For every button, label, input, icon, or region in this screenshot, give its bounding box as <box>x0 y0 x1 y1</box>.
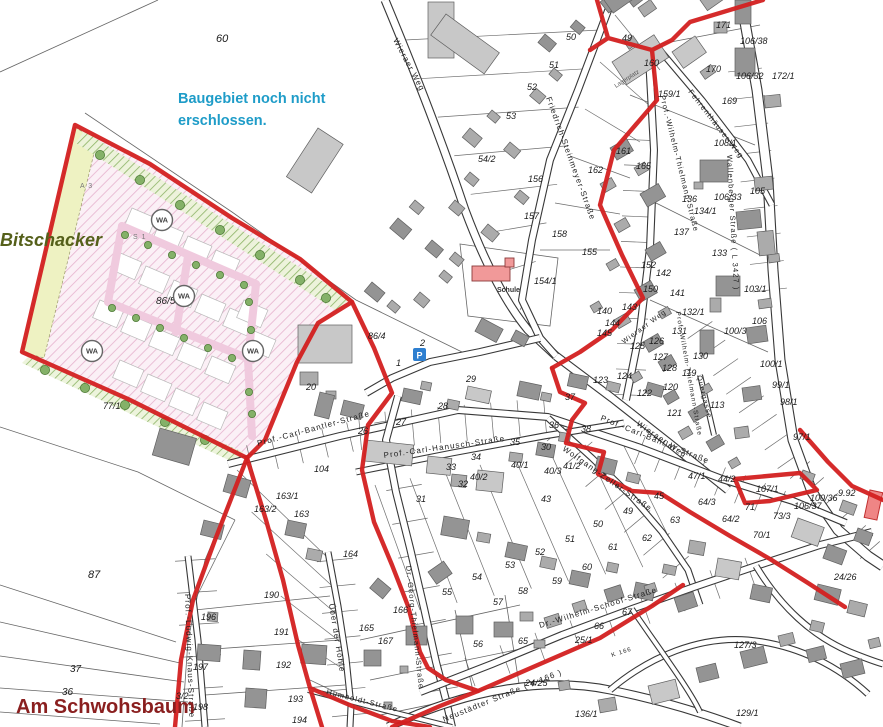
building <box>441 516 470 539</box>
parcel-number: 40/2 <box>470 472 488 482</box>
parcel-number: 97/1 <box>793 432 811 442</box>
parcel-number: 33 <box>446 462 456 472</box>
tree-icon <box>245 298 252 305</box>
parcel-number: 194 <box>292 715 307 725</box>
parcel-number: 41/2 <box>563 461 581 471</box>
zone-wa-label: WA <box>86 347 99 356</box>
building <box>734 426 749 439</box>
parcel-number: 121 <box>667 408 682 418</box>
parcel-number: 64/2 <box>722 514 740 524</box>
parcel-number: 32 <box>458 479 468 489</box>
parcel-number: 123 <box>593 375 608 385</box>
tree-icon <box>215 225 224 234</box>
parcel-number: 192 <box>276 660 291 670</box>
building <box>243 650 261 670</box>
parcel-number: 160 <box>644 58 659 68</box>
building <box>598 697 617 713</box>
building <box>534 640 545 648</box>
parcel-number: 73/3 <box>773 511 791 521</box>
parcel-number: 2 <box>419 338 425 348</box>
parcel-number: 163 <box>294 509 309 519</box>
parcel-number: 100/1 <box>760 359 783 369</box>
parcel-number: 40/3 <box>544 466 562 476</box>
building <box>420 381 431 391</box>
tree-icon <box>175 200 184 209</box>
parcel-number: 106/32 <box>736 71 764 81</box>
parcel-number: 37 <box>70 664 82 675</box>
parcel-number: 152 <box>641 260 656 270</box>
parcel-number: 54 <box>472 572 482 582</box>
tree-icon <box>245 388 252 395</box>
parcel-number: 128 <box>662 363 677 373</box>
parcel-number: 157 <box>524 211 540 221</box>
parcel-number: 104 <box>314 464 329 474</box>
parcel-number: 163/1 <box>276 491 299 501</box>
parcel-number: 167 <box>378 636 394 646</box>
parcel-number: 64/3 <box>698 497 716 507</box>
parcel-number: 197 <box>193 662 209 672</box>
parcel-number: 136/1 <box>575 709 598 719</box>
parcel-number: 129/1 <box>736 708 759 718</box>
school-building <box>472 266 510 281</box>
tree-icon <box>240 281 247 288</box>
parcel-number: 163/2 <box>254 504 277 514</box>
building <box>757 230 775 256</box>
parcel-number: 134/1 <box>694 206 717 216</box>
building <box>715 558 742 580</box>
parcel-number: 57 <box>493 597 504 607</box>
parcel-number: 86/5 <box>156 296 176 307</box>
parcel-number: 144 <box>605 318 620 328</box>
zone-wa-label: WA <box>247 347 260 356</box>
building <box>400 666 408 673</box>
parcel-number: 155 <box>582 247 598 257</box>
parcel-number: 28 <box>437 401 448 411</box>
tree-icon <box>108 304 115 311</box>
parcel-number: 169 <box>722 96 737 106</box>
parking-icon-letter: P <box>416 351 422 361</box>
parcel-number: 98/1 <box>780 397 798 407</box>
building <box>540 392 551 402</box>
parcel-number: 105 <box>750 186 766 196</box>
tree-icon <box>95 150 104 159</box>
parcel-number: 156 <box>528 174 543 184</box>
building <box>758 298 772 309</box>
parcel-number: 143 <box>622 302 637 312</box>
parcel-number: 103/1 <box>744 284 767 294</box>
tree-icon <box>228 354 235 361</box>
parcel-number: 127 <box>653 352 669 362</box>
building <box>694 182 703 189</box>
parcel-number: 158 <box>552 229 567 239</box>
parcel-number: 3/2 <box>176 691 189 701</box>
parcel-number: 145 <box>597 328 613 338</box>
tree-icon <box>144 241 151 248</box>
parcel-number: 24/26 <box>833 572 857 582</box>
tree-icon <box>121 231 128 238</box>
building <box>476 532 490 543</box>
parcel-number: 24/25 <box>524 678 549 688</box>
tree-icon <box>156 324 163 331</box>
parcel-number: 198 <box>193 702 208 712</box>
tree-icon <box>247 326 254 333</box>
building <box>520 612 533 621</box>
tree-icon <box>204 344 211 351</box>
parcel-number: 52 <box>527 82 537 92</box>
building <box>606 562 619 573</box>
parcel-number: 47/1 <box>688 471 706 481</box>
tree-icon <box>168 251 175 258</box>
building <box>456 616 473 634</box>
parcel-number: 154/1 <box>534 276 557 286</box>
tree-icon <box>255 250 264 259</box>
tree-icon <box>40 365 49 374</box>
zone-wa-label: WA <box>178 292 191 301</box>
parcel-number: 120 <box>663 382 678 392</box>
parcel-number: 196 <box>201 612 216 622</box>
parcel-number: 190 <box>264 590 279 600</box>
tree-icon <box>192 261 199 268</box>
parcel-number: 127/3 <box>734 640 757 650</box>
parcel-number: 43 <box>541 494 551 504</box>
building <box>768 253 780 262</box>
parcel-number: 56 <box>473 639 483 649</box>
parcel-number: 100/3 <box>724 326 747 336</box>
parcel-number: 132/1 <box>682 307 705 317</box>
zone-label: S 1 <box>133 234 147 241</box>
parcel-number: 30 <box>541 442 551 452</box>
icons-layer: P <box>413 348 426 361</box>
parcel-number: 164 <box>343 549 358 559</box>
parcel-number: 131 <box>672 326 687 336</box>
parcel-number: 106/33 <box>714 192 742 202</box>
parcel-number: 26 <box>357 426 368 436</box>
parcel-number: 124 <box>617 371 632 381</box>
parcel-number: 141 <box>670 288 685 298</box>
parcel-number: 20 <box>305 382 316 392</box>
parcel-number: 50 <box>593 519 603 529</box>
parcel-number: 66 <box>594 621 604 631</box>
parcel-number: 25/1 <box>574 635 593 645</box>
parcel-number: 65 <box>518 636 529 646</box>
parcel-number: 142 <box>656 268 671 278</box>
parcel-number: 37 <box>565 392 576 402</box>
parcel-number: 53 <box>505 560 515 570</box>
parcel-number: 108/1 <box>714 138 737 148</box>
building <box>197 644 221 662</box>
parcel-number: 106 <box>752 316 767 326</box>
parcel-number: 60 <box>582 562 592 572</box>
parcel-number: 166 <box>393 605 408 615</box>
parcel-number: 40/1 <box>511 460 529 470</box>
tree-icon <box>216 271 223 278</box>
parcel-number: 86/4 <box>368 331 386 341</box>
parcel-number: 140 <box>597 306 612 316</box>
parcel-number: 191 <box>274 627 289 637</box>
parcel-number: 36 <box>62 687 74 698</box>
parcel-number: 137 <box>674 227 690 237</box>
parcel-number: 70/1 <box>753 530 771 540</box>
tree-icon <box>132 314 139 321</box>
building <box>736 209 762 229</box>
parcel-number: 34 <box>471 452 481 462</box>
parcel-number: 67 <box>622 607 633 617</box>
parcel-number: 29 <box>465 374 476 384</box>
tree-icon <box>120 400 129 409</box>
tree-icon <box>248 410 255 417</box>
parcel-number: 59 <box>552 576 562 586</box>
parcel-number: 172/1 <box>772 71 795 81</box>
parcel-number: 49 <box>623 506 633 516</box>
parcel-number: 130 <box>693 351 708 361</box>
parcel-number: 136 <box>682 194 697 204</box>
map-viewport[interactable]: Wieraer WegFriedrich-Steinmeyer-StraßePr… <box>0 0 883 727</box>
building <box>688 540 706 556</box>
parcel-number: 99/1 <box>772 380 790 390</box>
zone-label: A 3 <box>80 183 93 190</box>
parcel-number: 126 <box>649 336 664 346</box>
building <box>364 650 381 666</box>
parcel-number: 36 <box>549 420 559 430</box>
parcel-number: 55 <box>442 587 453 597</box>
tree-icon <box>135 175 144 184</box>
parcel-number: 44/2 <box>718 474 736 484</box>
parcel-number: 171 <box>716 20 731 30</box>
building <box>700 160 728 182</box>
parcel-number: 159/1 <box>658 89 681 99</box>
parcel-number: 54/2 <box>478 154 496 164</box>
parcel-number: 61 <box>608 542 618 552</box>
building <box>746 325 768 344</box>
parcel-number: 1 <box>396 358 401 368</box>
parcel-number: 161 <box>616 146 631 156</box>
parcel-number: 51 <box>565 534 575 544</box>
parcel-number: 52 <box>535 547 545 557</box>
building <box>558 680 570 691</box>
parcel-number: 162 <box>588 165 603 175</box>
parcel-number: 119 <box>682 368 696 378</box>
parcel-number: 51 <box>549 60 559 70</box>
building <box>245 688 267 708</box>
parcel-number: 106/38 <box>740 36 768 46</box>
parcel-number: 122 <box>637 388 652 398</box>
map-canvas[interactable]: Wieraer WegFriedrich-Steinmeyer-StraßePr… <box>0 0 883 727</box>
parcel-number: 193 <box>288 694 303 704</box>
parcel-number: 170 <box>706 64 721 74</box>
parcel-number: 62 <box>642 533 652 543</box>
tree-icon <box>180 334 187 341</box>
school-label: Schule <box>497 287 520 294</box>
parcel-number: 133 <box>712 248 727 258</box>
parcel-number: 165 <box>636 161 652 171</box>
parcel-number: 31 <box>416 494 426 504</box>
parcel-number: 60 <box>216 33 229 45</box>
tree-icon <box>321 293 330 302</box>
parcel-number: 77/1 <box>103 401 121 411</box>
parcel-number: 58 <box>518 586 528 596</box>
parcel-number: 63 <box>670 515 680 525</box>
parcel-number: 150 <box>643 284 658 294</box>
building <box>764 94 781 108</box>
parcel-number: 71 <box>745 502 755 512</box>
parcel-number: 35 <box>510 437 521 447</box>
parcel-number: 107/1 <box>756 484 779 494</box>
parcel-number: 45 <box>654 491 665 501</box>
parcel-number: 87 <box>88 569 101 581</box>
parcel-number: 125 <box>630 341 646 351</box>
parcel-number: 49 <box>622 33 632 43</box>
parcel-number: 50 <box>566 32 576 42</box>
parcel-number: 38 <box>581 424 591 434</box>
tree-icon <box>80 383 89 392</box>
zone-wa-label: WA <box>156 216 169 225</box>
parcel-number: 27 <box>395 417 407 427</box>
building <box>710 298 721 312</box>
building <box>494 622 513 637</box>
building <box>742 385 762 401</box>
tree-icon <box>295 275 304 284</box>
parcel-number: 9.92 <box>838 488 856 498</box>
parcel-number: 53 <box>506 111 516 121</box>
parcel-number: 113 <box>710 400 724 410</box>
parcel-number: 100/36 <box>810 493 838 503</box>
parcel-number: 165 <box>359 623 375 633</box>
